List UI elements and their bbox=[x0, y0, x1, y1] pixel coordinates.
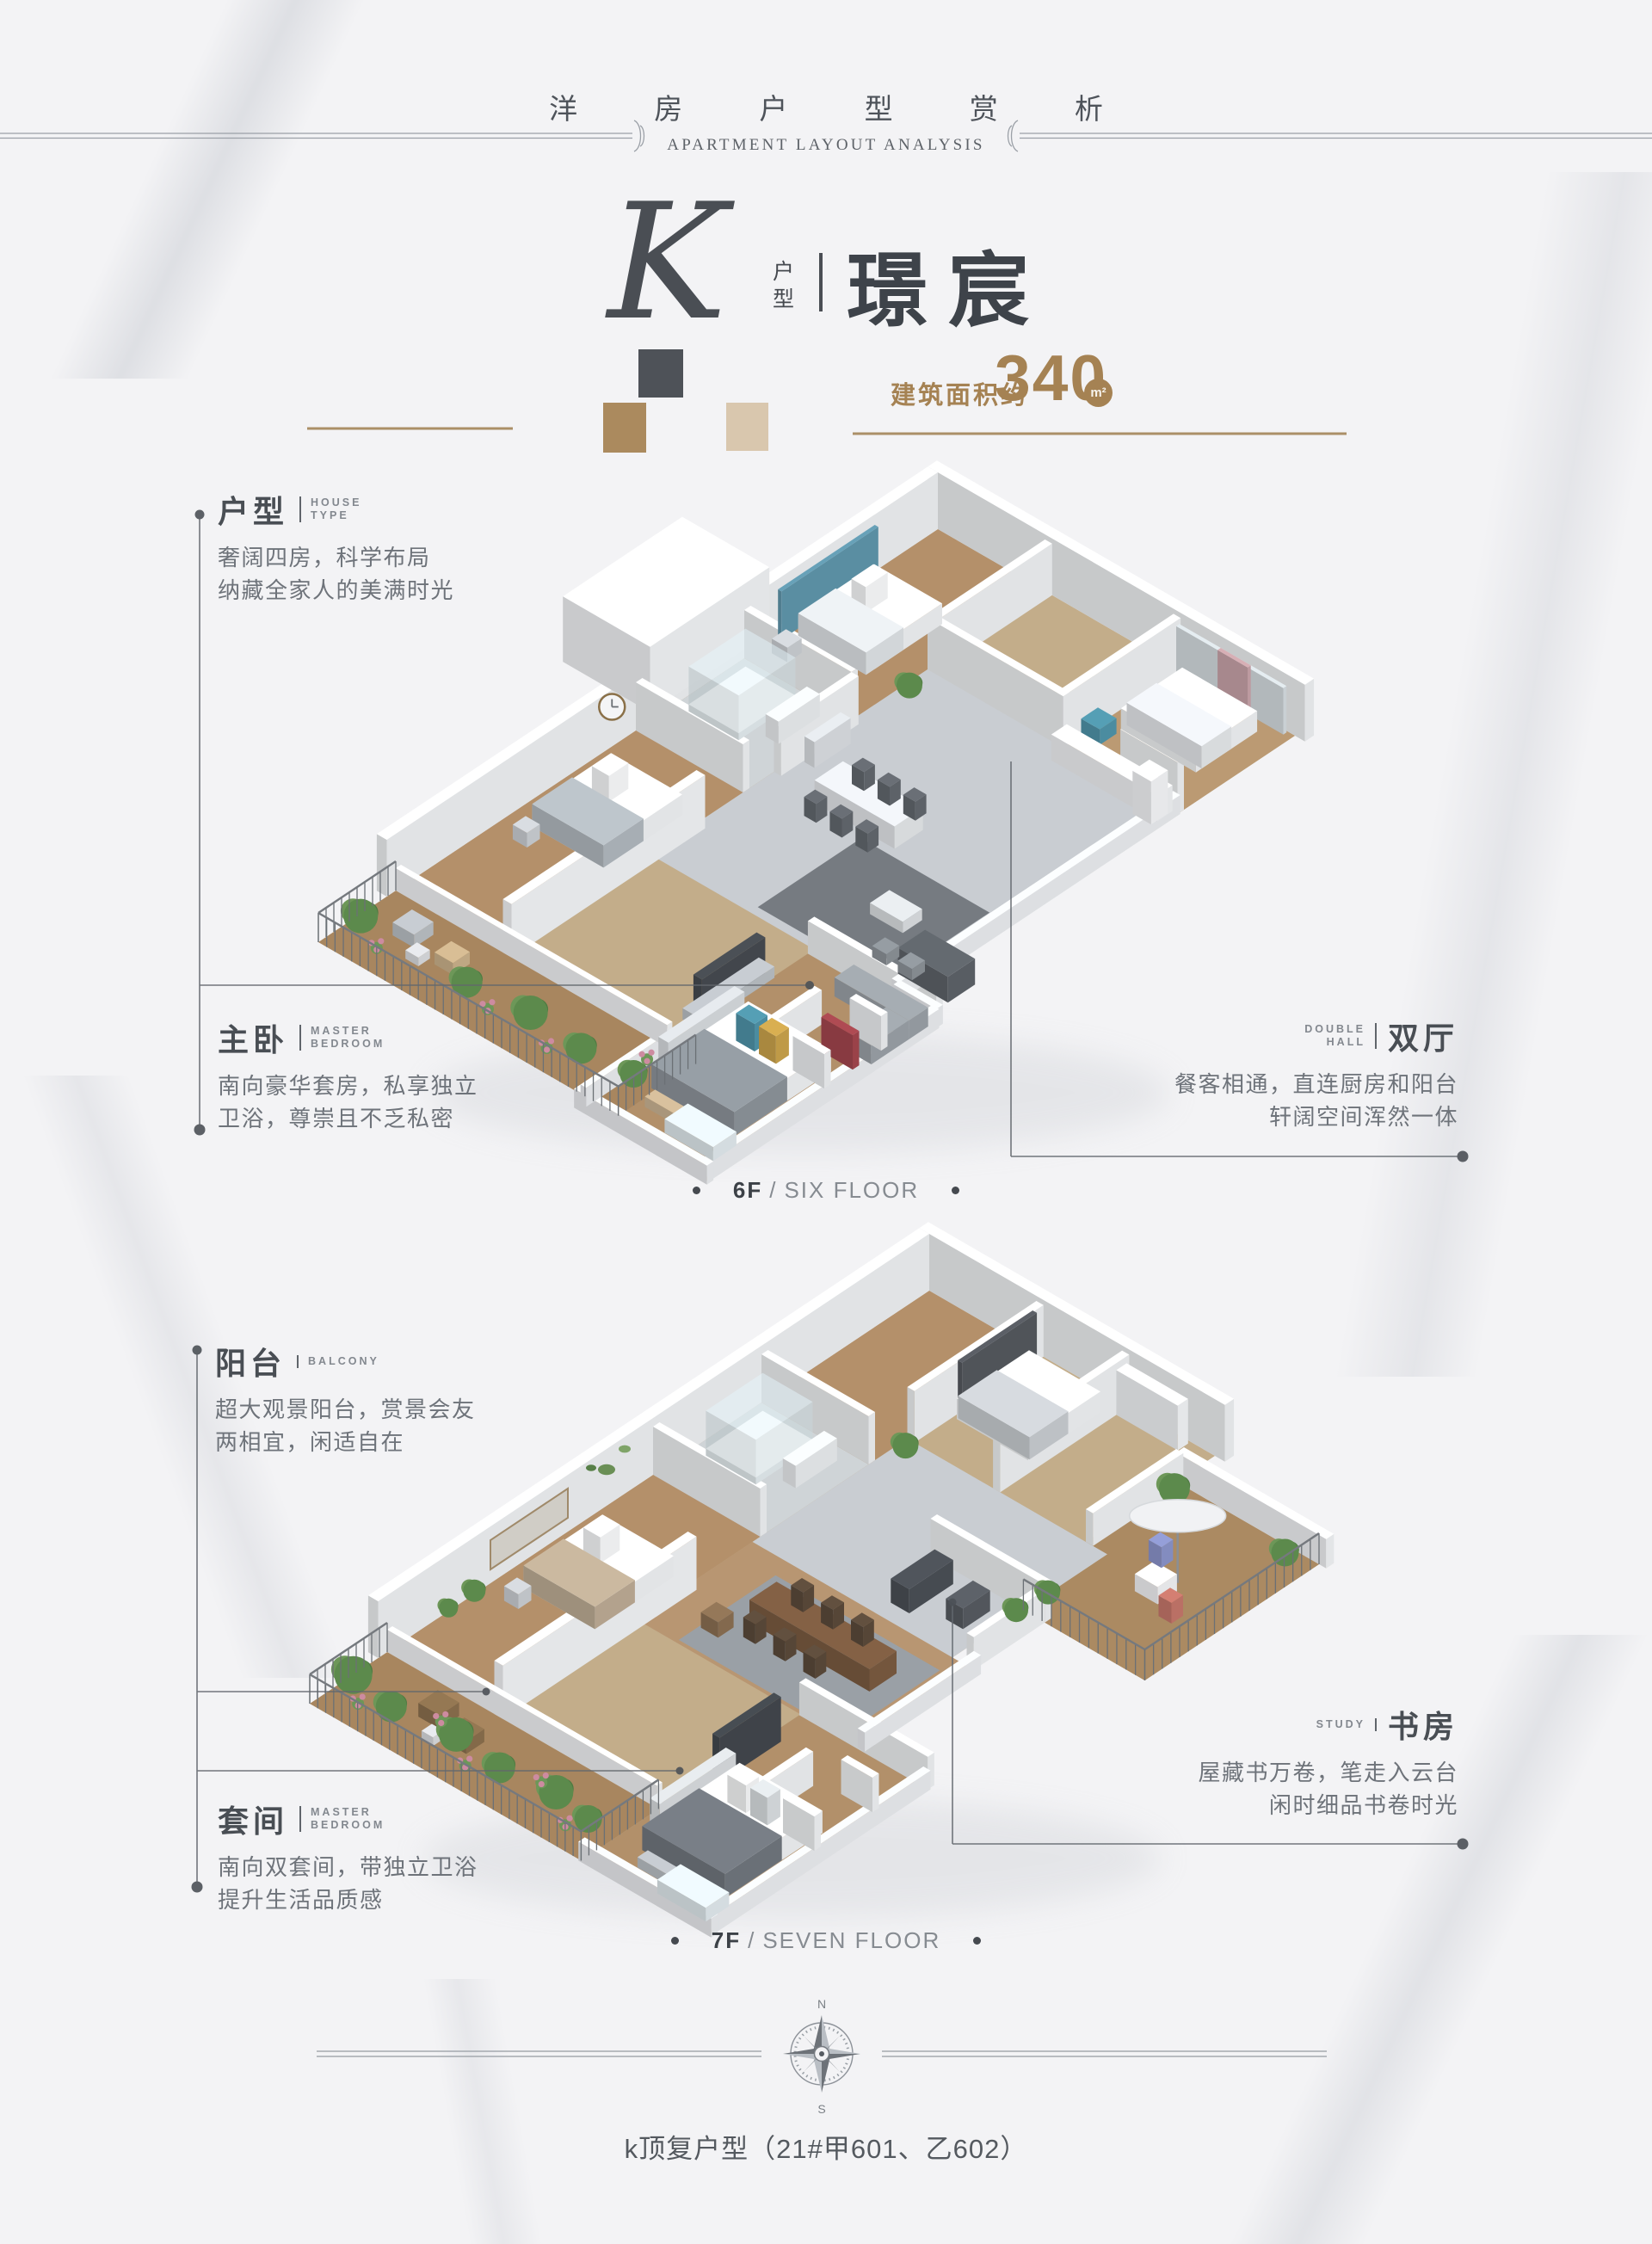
callout-study: STUDY 书房 屋藏书万卷，笔走入云台闲时细品书卷时光 bbox=[1198, 1702, 1458, 1822]
callout-title: 阳台 bbox=[215, 1339, 286, 1384]
floor-tag-6f: 6F/SIX FLOOR bbox=[568, 1177, 1084, 1204]
page-subtitle: APARTMENT LAYOUT ANALYSIS bbox=[0, 136, 1652, 155]
poster: N S 洋 房 户 型 赏 析 APARTMENT LAYOUT ANALYSI… bbox=[0, 0, 1652, 2244]
swatch-beige bbox=[726, 403, 768, 451]
area-unit-badge: m² bbox=[1084, 379, 1113, 407]
callout-text: 屋藏书万卷，笔走入云台闲时细品书卷时光 bbox=[1198, 1756, 1458, 1822]
hero-divider bbox=[819, 253, 823, 311]
callout-title: 套间 bbox=[218, 1797, 288, 1841]
swatch-dark bbox=[638, 349, 683, 398]
callout-house-type: 户型 HOUSETYPE 奢阔四房，科学布局纳藏全家人的美满时光 bbox=[218, 487, 454, 607]
page-title: 洋 房 户 型 赏 析 bbox=[0, 86, 1652, 127]
footer-unit-info: k顶复户型（21#甲601、乙602） bbox=[0, 2127, 1652, 2166]
dot bbox=[973, 1937, 981, 1945]
unit-letter-tag: 户型 bbox=[773, 258, 798, 313]
callout-title-en: DOUBLEHALL bbox=[1304, 1023, 1377, 1049]
callout-text: 餐客相通，直连厨房和阳台轩阔空间浑然一体 bbox=[1174, 1068, 1458, 1133]
callout-text: 南向豪华套房，私享独立卫浴，尊崇且不乏私密 bbox=[218, 1070, 478, 1135]
callout-title: 双厅 bbox=[1388, 1014, 1458, 1058]
compass-icon: N S bbox=[317, 1997, 1327, 2116]
dot bbox=[693, 1187, 700, 1194]
callout-master-bedroom-6f: 主卧 MASTERBEDROOM 南向豪华套房，私享独立卫浴，尊崇且不乏私密 bbox=[218, 1015, 478, 1135]
gold-rules bbox=[307, 428, 1347, 434]
callout-double-hall: DOUBLEHALL 双厅 餐客相通，直连厨房和阳台轩阔空间浑然一体 bbox=[1174, 1014, 1458, 1133]
compass-south-label: S bbox=[817, 2102, 825, 2116]
callout-title-en: STUDY bbox=[1316, 1718, 1377, 1731]
callout-text: 超大观景阳台，赏景会友两相宜，闲适自在 bbox=[215, 1393, 476, 1458]
dot bbox=[671, 1937, 679, 1945]
callout-title-en: MASTERBEDROOM bbox=[299, 1025, 385, 1051]
callout-suite: 套间 MASTERBEDROOM 南向双套间，带独立卫浴提升生活品质感 bbox=[218, 1797, 478, 1916]
dot bbox=[952, 1187, 959, 1194]
callout-balcony: 阳台 BALCONY 超大观景阳台，赏景会友两相宜，闲适自在 bbox=[215, 1339, 476, 1458]
callout-text: 南向双套间，带独立卫浴提升生活品质感 bbox=[218, 1851, 478, 1916]
callout-text: 奢阔四房，科学布局纳藏全家人的美满时光 bbox=[218, 541, 454, 607]
callout-title: 户型 bbox=[218, 487, 288, 532]
callout-title-en: MASTERBEDROOM bbox=[299, 1806, 385, 1832]
callout-title-en: HOUSETYPE bbox=[299, 496, 361, 522]
floor-tag-7f: 7F/SEVEN FLOOR bbox=[568, 1927, 1084, 1954]
project-name: 璟宸 bbox=[847, 225, 1050, 342]
swatch-tan bbox=[603, 403, 646, 453]
unit-letter: K bbox=[607, 182, 727, 342]
callout-title: 主卧 bbox=[218, 1015, 288, 1060]
callout-title-en: BALCONY bbox=[297, 1355, 379, 1368]
callout-title: 书房 bbox=[1388, 1702, 1458, 1747]
compass-north-label: N bbox=[817, 1997, 826, 2011]
